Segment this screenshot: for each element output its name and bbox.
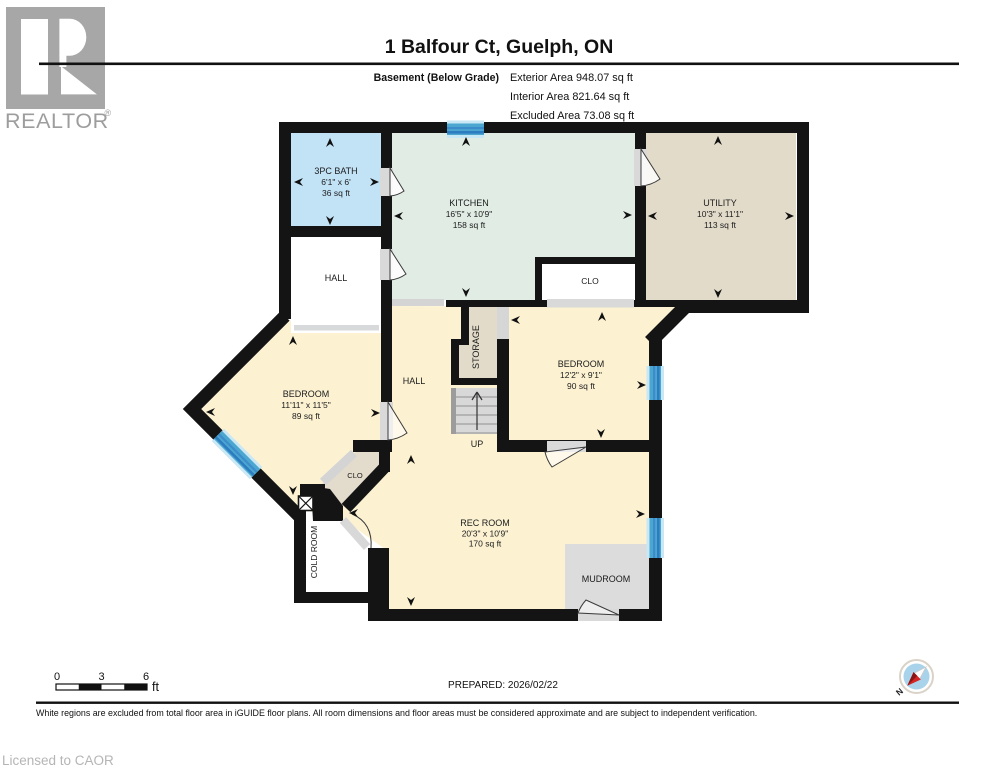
svg-text:158 sq ft: 158 sq ft <box>453 220 486 230</box>
svg-text:BEDROOM: BEDROOM <box>558 359 605 369</box>
svg-text:Basement (Below Grade): Basement (Below Grade) <box>374 72 499 84</box>
svg-text:3PC BATH: 3PC BATH <box>314 166 357 176</box>
svg-text:16'5" x 10'9": 16'5" x 10'9" <box>446 209 493 219</box>
svg-text:CLO: CLO <box>347 471 363 480</box>
svg-text:36 sq ft: 36 sq ft <box>322 188 351 198</box>
svg-text:KITCHEN: KITCHEN <box>449 198 489 208</box>
svg-text:1 Balfour Ct, Guelph, ON: 1 Balfour Ct, Guelph, ON <box>385 36 614 58</box>
svg-text:10'3" x 11'1": 10'3" x 11'1" <box>697 209 743 219</box>
svg-text:PREPARED: 2026/02/22: PREPARED: 2026/02/22 <box>448 680 558 691</box>
svg-text:Interior Area 821.64 sq ft: Interior Area 821.64 sq ft <box>510 91 629 103</box>
svg-text:BEDROOM: BEDROOM <box>283 389 330 399</box>
svg-text:UTILITY: UTILITY <box>703 198 737 208</box>
svg-text:0: 0 <box>54 671 60 683</box>
svg-text:89 sq ft: 89 sq ft <box>292 411 321 421</box>
svg-text:White regions are excluded fro: White regions are excluded from total fl… <box>36 708 757 718</box>
svg-text:170 sq ft: 170 sq ft <box>469 539 502 549</box>
svg-text:HALL: HALL <box>403 376 426 386</box>
svg-text:CLO: CLO <box>581 276 599 286</box>
svg-text:®: ® <box>105 108 112 118</box>
svg-text:Excluded Area 73.08 sq ft: Excluded Area 73.08 sq ft <box>510 110 634 122</box>
svg-text:COLD ROOM: COLD ROOM <box>309 526 319 578</box>
svg-text:REC ROOM: REC ROOM <box>460 518 510 528</box>
svg-text:STORAGE: STORAGE <box>471 325 481 369</box>
svg-text:MUDROOM: MUDROOM <box>582 574 631 584</box>
svg-text:12'2" x 9'1": 12'2" x 9'1" <box>560 370 602 380</box>
svg-text:6'1" x 6': 6'1" x 6' <box>321 177 351 187</box>
svg-text:UP: UP <box>471 439 484 449</box>
svg-text:90 sq ft: 90 sq ft <box>567 381 596 391</box>
svg-text:11'11" x 11'5": 11'11" x 11'5" <box>281 400 330 410</box>
svg-text:REALTOR: REALTOR <box>5 109 109 133</box>
svg-text:ft: ft <box>152 680 159 694</box>
svg-text:113 sq ft: 113 sq ft <box>704 220 737 230</box>
svg-text:20'3" x 10'9": 20'3" x 10'9" <box>462 529 509 539</box>
svg-text:HALL: HALL <box>325 273 348 283</box>
svg-text:Exterior Area 948.07 sq ft: Exterior Area 948.07 sq ft <box>510 72 633 84</box>
svg-text:3: 3 <box>98 671 104 683</box>
svg-text:Licensed to CAOR: Licensed to CAOR <box>2 753 114 768</box>
svg-text:6: 6 <box>143 671 149 683</box>
